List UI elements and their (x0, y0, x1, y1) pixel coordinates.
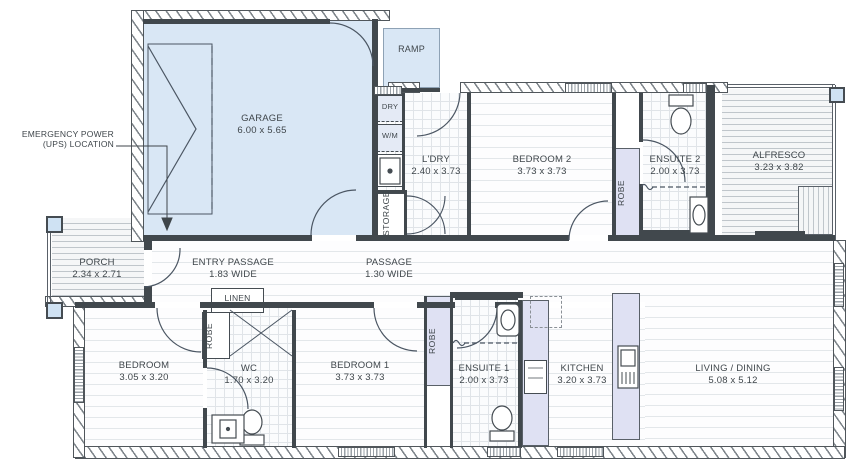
laundry-tub (377, 154, 403, 187)
emergency-power-note: EMERGENCY POWER (UPS) LOCATION (8, 129, 114, 149)
window (74, 347, 84, 403)
shower-screen-ensuite2 (643, 230, 707, 235)
room-label-kitchen: KITCHEN 3.20 x 3.73 (538, 363, 626, 386)
shower-screen-ensuite1 (455, 296, 518, 300)
alfresco-right-edge (832, 85, 836, 240)
wall (356, 235, 373, 241)
wall (75, 302, 155, 308)
wall (372, 19, 378, 240)
sliding-door (755, 231, 805, 235)
room-label-garage: GARAGE 6.00 x 5.65 (197, 113, 327, 136)
room-label-bedroom2: BEDROOM 2 3.73 x 3.73 (477, 154, 607, 177)
wall (404, 193, 407, 238)
room-label-entry-passage: ENTRY PASSAGE 1.83 WIDE (170, 257, 296, 280)
window (834, 263, 844, 307)
window (565, 83, 612, 93)
room-label-alfresco: ALFRESCO 3.23 x 3.82 (729, 150, 829, 173)
window (487, 447, 521, 457)
alfresco-top-edge (728, 84, 835, 88)
wall-garage-left (131, 10, 144, 242)
label-linen: LINEN (211, 293, 264, 305)
room-label-bedroom1: BEDROOM 1 3.73 x 3.73 (299, 360, 421, 383)
alfresco-post (829, 87, 845, 103)
label-dry: DRY (377, 102, 403, 111)
room-label-wc: WC 1.70 x 3.20 (206, 363, 292, 386)
window (557, 447, 604, 457)
porch-post (46, 216, 63, 233)
wall-bottom (75, 446, 845, 459)
wall (143, 235, 312, 241)
room-label-ramp: RAMP (383, 44, 440, 56)
window (834, 367, 844, 411)
room-label-porch: PORCH 2.34 x 2.71 (55, 257, 139, 280)
emergency-power-note-line1: EMERGENCY POWER (8, 129, 114, 139)
wall (144, 241, 152, 250)
room-label-ensuite2: ENSUITE 2 2.00 x 3.73 (638, 154, 712, 177)
ramp-floor (383, 28, 440, 88)
wall (639, 184, 643, 235)
wall (143, 19, 330, 24)
label-wm: W/M (377, 131, 403, 140)
wall (203, 408, 207, 448)
window (683, 83, 707, 93)
step-treads (374, 86, 402, 95)
wall (292, 310, 296, 448)
wall (608, 235, 712, 241)
room-label-living-dining: LIVING / DINING 5.08 x 5.12 (671, 363, 795, 386)
emergency-power-note-line2: (UPS) LOCATION (8, 139, 114, 149)
room-label-ensuite1: ENSUITE 1 2.00 x 3.73 (447, 363, 521, 386)
floor-plan: EMERGENCY POWER (UPS) LOCATION GARAGE 6.… (0, 0, 858, 459)
room-label-passage: PASSAGE 1.30 WIDE (337, 257, 441, 280)
living-floor (645, 241, 833, 448)
porch-post (46, 302, 63, 319)
alfresco-steps (798, 186, 833, 235)
room-label-ldry: L'DRY 2.40 x 3.73 (403, 154, 469, 177)
room-label-bedroom: BEDROOM 3.05 x 3.20 (84, 360, 204, 383)
label-robe-bedroom: ROBE (204, 316, 228, 356)
label-robe-ensuite2: ROBE (616, 168, 639, 218)
wall (144, 286, 152, 303)
porch-left-edge (47, 220, 51, 310)
overhead-cupboard (530, 296, 562, 328)
wall (712, 235, 835, 241)
wall (639, 93, 643, 142)
window (338, 447, 395, 457)
label-storage: STORAGE (381, 196, 403, 236)
label-robe-bedroom1: ROBE (427, 316, 450, 366)
